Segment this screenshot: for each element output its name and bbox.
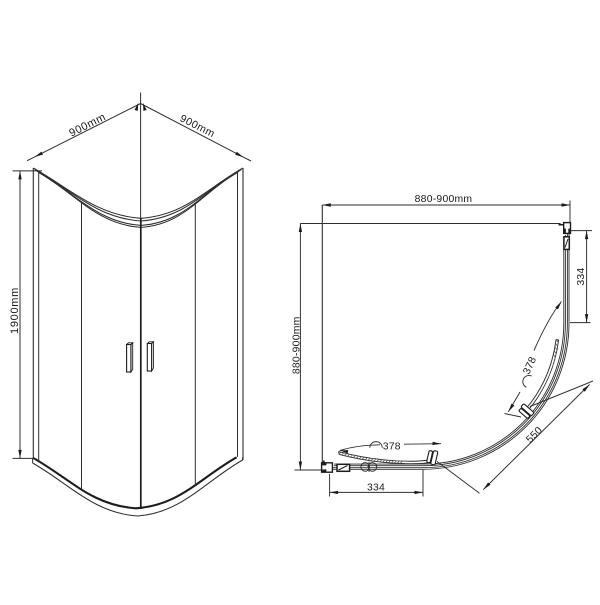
svg-text:880-900mm: 880-900mm [415,194,473,205]
svg-text:880-900mm: 880-900mm [292,316,303,374]
svg-text:334: 334 [576,268,587,286]
svg-text:334: 334 [367,483,385,494]
svg-text:1900mm: 1900mm [9,287,21,334]
svg-text:378: 378 [383,441,401,452]
